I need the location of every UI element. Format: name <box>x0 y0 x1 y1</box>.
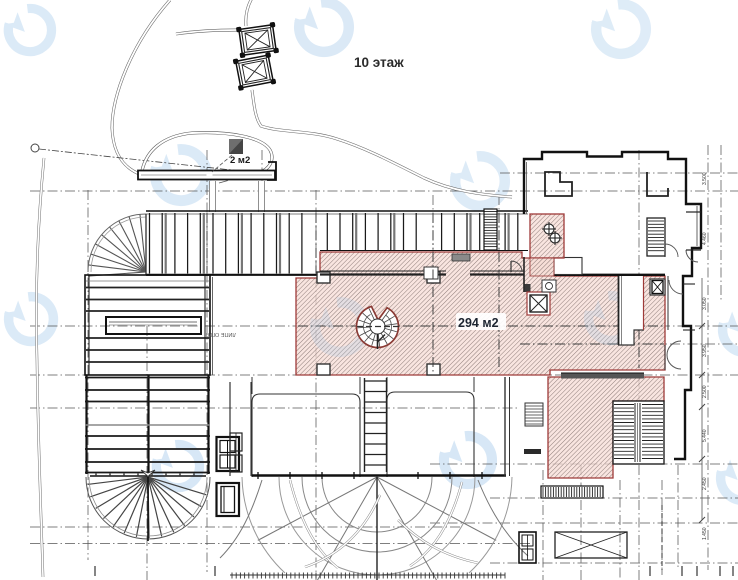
svg-text:2 м2: 2 м2 <box>230 155 250 166</box>
svg-text:294 м2: 294 м2 <box>458 316 499 330</box>
svg-text:ЛИПЕ ОП/Л: ЛИПЕ ОП/Л <box>206 331 236 337</box>
svg-text:5.440: 5.440 <box>702 429 708 442</box>
svg-text:1.450: 1.450 <box>702 527 708 540</box>
svg-text:3.050: 3.050 <box>702 297 708 310</box>
svg-text:3.950: 3.950 <box>702 344 708 357</box>
svg-text:4.460: 4.460 <box>702 232 708 245</box>
svg-text:2.500: 2.500 <box>702 385 708 398</box>
svg-text:2.450: 2.450 <box>702 477 708 490</box>
svg-text:3.500: 3.500 <box>702 172 708 185</box>
svg-text:10 этаж: 10 этаж <box>354 55 404 70</box>
